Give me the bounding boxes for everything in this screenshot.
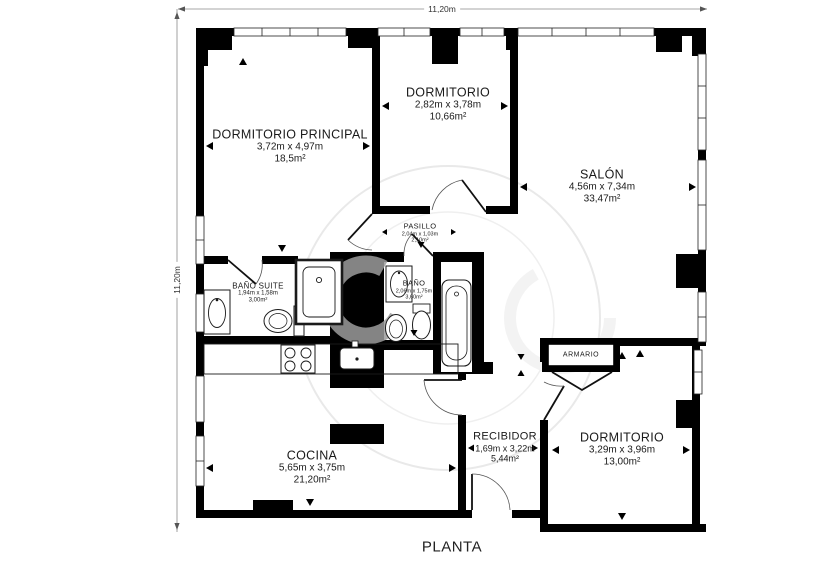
- dimension-left: 11,20m: [172, 262, 182, 298]
- room-label-pasillo: PASILLO 2,04m x 1,03m 2,10m²: [402, 222, 438, 243]
- room-label-cocina: COCINA 5,65m x 3,75m 21,20m²: [279, 448, 345, 485]
- shower-icon: [296, 260, 342, 324]
- bathtub-icon: [441, 262, 472, 372]
- dimension-top: 11,20m: [424, 4, 460, 14]
- washbasin-icon: [204, 290, 230, 334]
- room-label-recibidor: RECIBIDOR 1,69m x 3,22m 5,44m²: [473, 430, 537, 463]
- room-label-bano: BAÑO 2,06m x 1,75m 3,60m²: [396, 279, 432, 300]
- stove-icon: [281, 345, 315, 373]
- toilet-icon: [386, 315, 407, 342]
- room-label-dormitorio: DORMITORIO 2,82m x 3,78m 10,66m²: [406, 85, 490, 122]
- room-label-bano-suite: BAÑO SUITE 1,94m x 1,58m 3,00m²: [232, 282, 283, 305]
- plan-title: PLANTA: [422, 539, 482, 556]
- room-label-dormitorio-principal: DORMITORIO PRINCIPAL 3,72m x 4,97m 18,5m…: [212, 127, 368, 164]
- room-label-armario: ARMARIO: [563, 352, 599, 359]
- room-label-salon: SALÓN 4,56m x 7,34m 33,47m²: [569, 167, 635, 204]
- floor-plan-page: DORMITORIO PRINCIPAL 3,72m x 4,97m 18,5m…: [0, 0, 828, 569]
- room-label-dormitorio-2: DORMITORIO 3,29m x 3,96m 13,00m²: [580, 430, 664, 467]
